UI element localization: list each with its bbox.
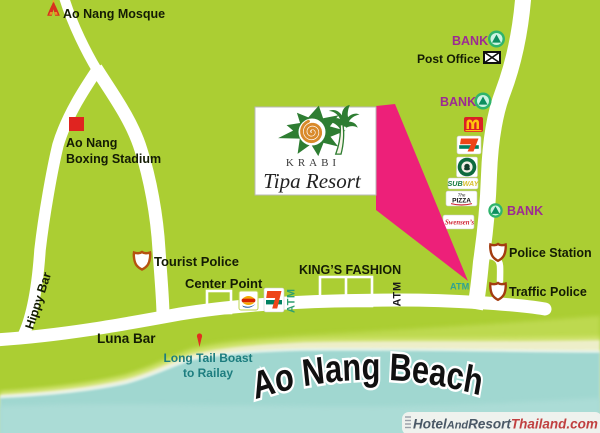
svg-text:BANK: BANK [440, 95, 476, 109]
svg-text:Tourist Police: Tourist Police [154, 254, 239, 269]
svg-text:ATM: ATM [286, 288, 298, 313]
svg-text:Ao Nang Mosque: Ao Nang Mosque [63, 7, 165, 21]
svg-text:KRABI: KRABI [286, 157, 340, 169]
svg-text:Center Point: Center Point [185, 276, 263, 291]
svg-text:Luna Bar: Luna Bar [97, 331, 156, 346]
svg-text:BANK: BANK [507, 204, 543, 218]
svg-text:Long Tail Boast: Long Tail Boast [163, 351, 252, 365]
svg-text:PIZZA: PIZZA [452, 198, 471, 205]
svg-text:Swensen’s: Swensen’s [445, 220, 474, 227]
svg-text:Police Station: Police Station [509, 246, 592, 260]
svg-text:SUBWAY: SUBWAY [447, 179, 479, 188]
svg-text:HotelAndResortThailand.com: HotelAndResortThailand.com [413, 417, 598, 432]
svg-text:Boxing Stadium: Boxing Stadium [66, 152, 161, 166]
svg-text:KING’S FASHION: KING’S FASHION [299, 263, 401, 277]
svg-text:to Railay: to Railay [183, 366, 233, 380]
svg-text:ATM: ATM [392, 281, 404, 306]
svg-text:BANK: BANK [452, 34, 488, 48]
svg-text:Ao Nang: Ao Nang [66, 136, 117, 150]
svg-text:ATM: ATM [450, 282, 470, 292]
svg-text:Post Office: Post Office [417, 52, 481, 66]
svg-text:Traffic Police: Traffic Police [509, 285, 587, 299]
svg-text:Tipa Resort: Tipa Resort [263, 169, 362, 193]
